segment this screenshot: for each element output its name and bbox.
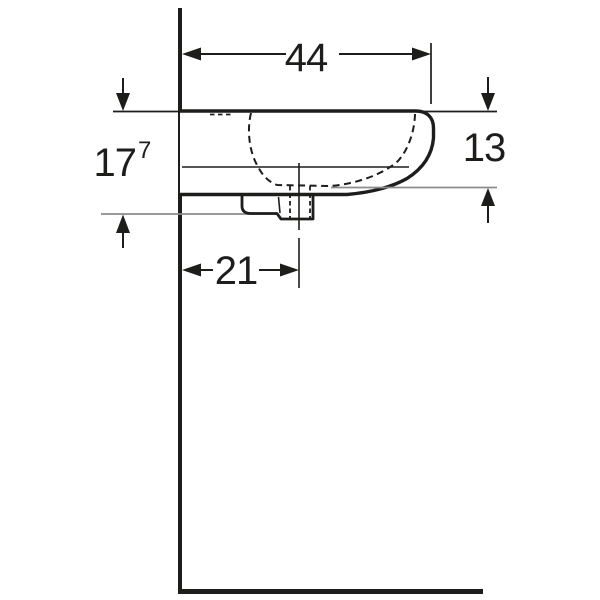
trap-divider-line [279,197,281,213]
arrowhead-up-icon [116,215,130,234]
arrowhead-right-icon [412,48,431,61]
dim-13-label: 13 [463,126,506,170]
washbasin-side-view-drawing: 44 13 17 7 21 [0,0,600,600]
dim-17-superscript: 7 [138,137,151,164]
wall-and-floor [178,8,483,594]
drawing-canvas: 44 13 17 7 21 [0,0,600,600]
dim-overall-width: 44 [182,36,431,104]
wall-line [178,8,182,593]
dim-44-label: 44 [285,36,328,80]
arrowhead-right-icon [280,264,299,277]
floor-line [178,589,483,594]
arrowhead-down-icon [481,93,495,111]
dim-17-label: 17 [94,141,137,185]
dim-drain-distance: 21 [182,249,299,293]
dim-wall-height: 17 7 [94,78,152,248]
dim-21-label: 21 [215,249,258,293]
arrowhead-down-icon [116,93,130,111]
arrowhead-up-icon [481,188,495,206]
trap-outline [242,196,313,219]
arrowhead-left-icon [182,264,201,277]
dim-front-height: 13 [463,77,506,223]
drain-trap [242,196,313,219]
basin-outline [180,111,434,195]
arrowhead-left-icon [182,48,201,61]
